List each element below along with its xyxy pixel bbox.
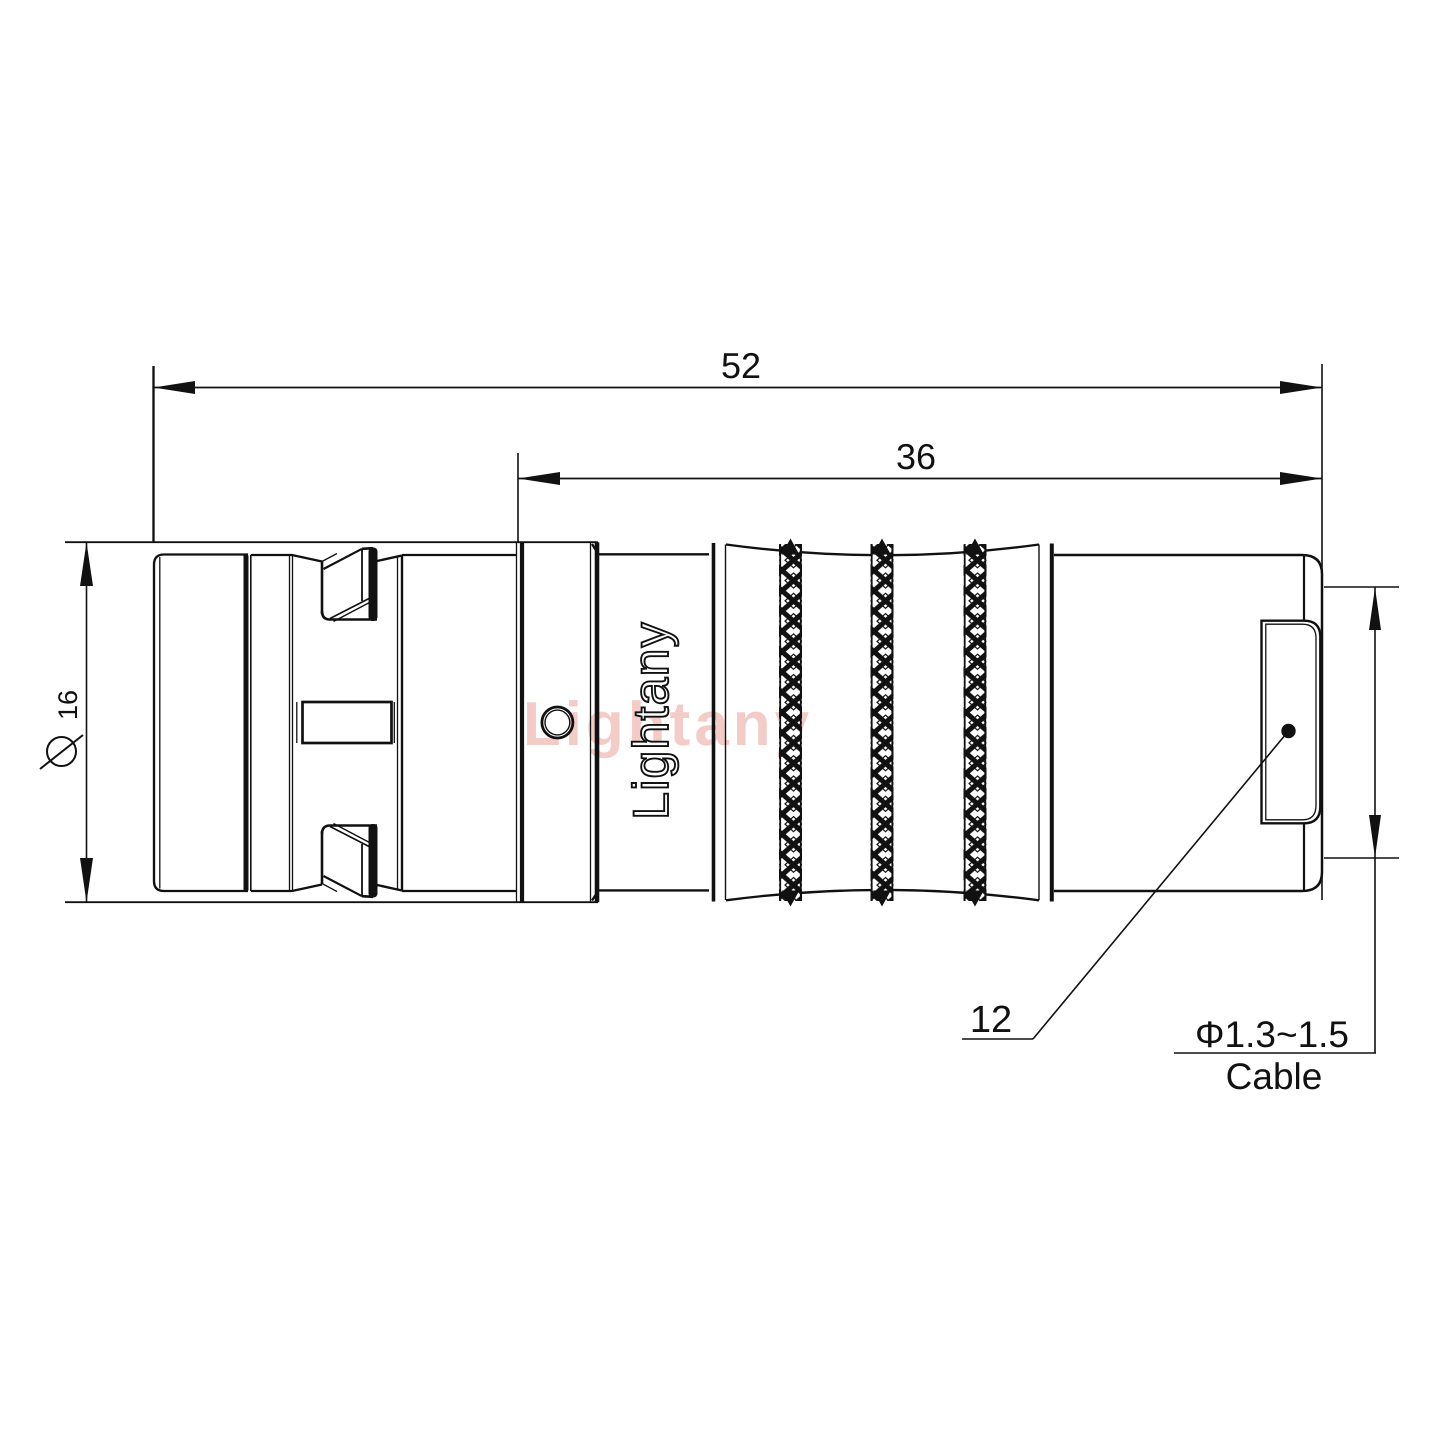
svg-text:16: 16	[53, 690, 83, 720]
svg-text:Φ1.3~1.5: Φ1.3~1.5	[1195, 1014, 1349, 1055]
svg-text:36: 36	[896, 436, 936, 477]
svg-text:52: 52	[721, 345, 761, 386]
svg-text:Lightany: Lightany	[623, 621, 679, 820]
svg-text:Cable: Cable	[1226, 1056, 1323, 1097]
svg-text:12: 12	[970, 999, 1012, 1041]
